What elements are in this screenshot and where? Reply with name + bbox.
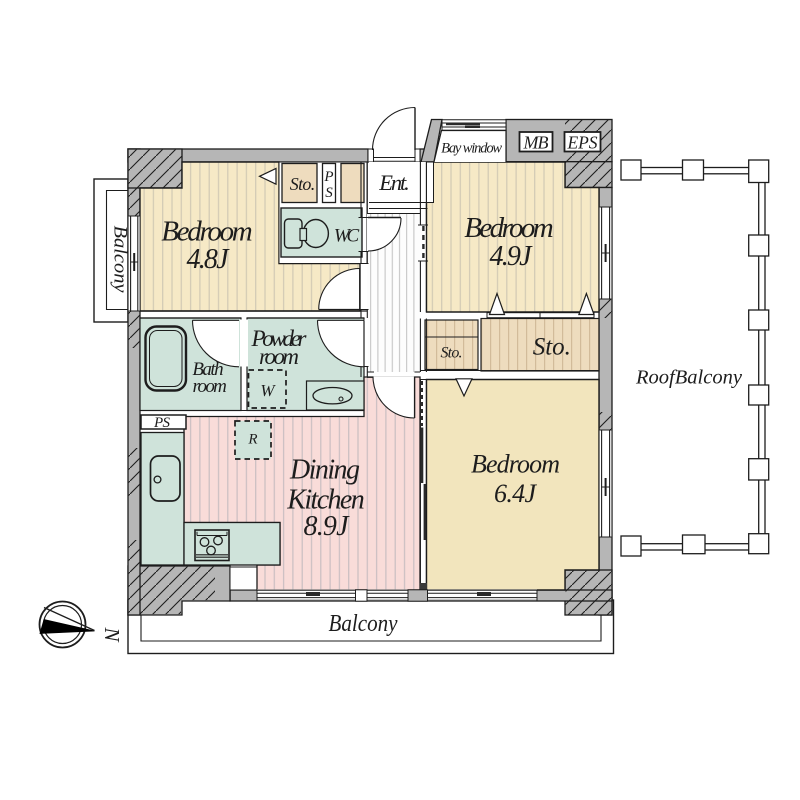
svg-text:PS: PS	[153, 415, 171, 431]
svg-text:Bedroom: Bedroom	[161, 216, 253, 248]
svg-text:P: P	[323, 169, 333, 185]
svg-text:S: S	[325, 185, 333, 201]
svg-text:Bay window: Bay window	[441, 141, 502, 157]
svg-text:Bedroom: Bedroom	[471, 450, 560, 479]
svg-text:Dining: Dining	[289, 455, 360, 486]
svg-text:Bedroom: Bedroom	[464, 212, 554, 244]
svg-text:6.4J: 6.4J	[494, 479, 537, 508]
svg-text:4.9J: 4.9J	[490, 241, 534, 272]
svg-text:4.8J: 4.8J	[187, 244, 231, 275]
svg-text:Ent.: Ent.	[378, 170, 410, 195]
svg-text:room: room	[193, 376, 227, 397]
svg-text:WC: WC	[334, 226, 360, 247]
svg-text:Balcony: Balcony	[110, 226, 131, 294]
svg-text:W: W	[260, 381, 276, 400]
svg-text:R: R	[247, 432, 257, 448]
svg-text:Sto.: Sto.	[441, 345, 463, 362]
svg-text:Sto.: Sto.	[290, 174, 315, 194]
svg-text:8.9J: 8.9J	[304, 511, 351, 542]
svg-text:MB: MB	[523, 133, 549, 153]
svg-text:room: room	[259, 344, 299, 369]
svg-text:Sto.: Sto.	[533, 334, 571, 361]
svg-text:N: N	[100, 626, 124, 642]
svg-text:Balcony: Balcony	[329, 611, 398, 637]
svg-text:EPS: EPS	[567, 133, 598, 153]
svg-text:RoofBalcony: RoofBalcony	[635, 367, 742, 389]
